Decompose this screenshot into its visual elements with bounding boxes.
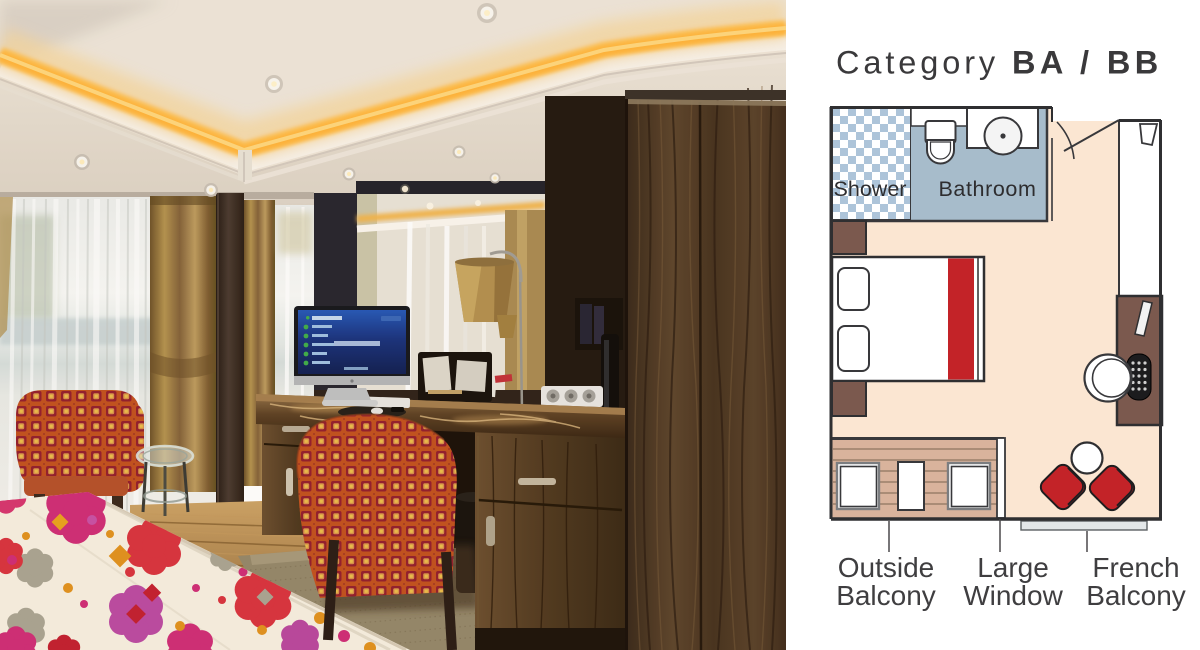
svg-text:Category BA / BB: Category BA / BB bbox=[836, 45, 1163, 81]
svg-text:Outside: Outside bbox=[838, 552, 935, 583]
svg-text:Shower: Shower bbox=[834, 177, 907, 201]
svg-text:Bathroom: Bathroom bbox=[938, 177, 1036, 201]
svg-text:French: French bbox=[1092, 552, 1179, 583]
svg-text:Balcony: Balcony bbox=[1086, 580, 1186, 611]
svg-text:Balcony: Balcony bbox=[836, 580, 936, 611]
svg-text:Window: Window bbox=[963, 580, 1063, 611]
svg-text:Large: Large bbox=[977, 552, 1049, 583]
